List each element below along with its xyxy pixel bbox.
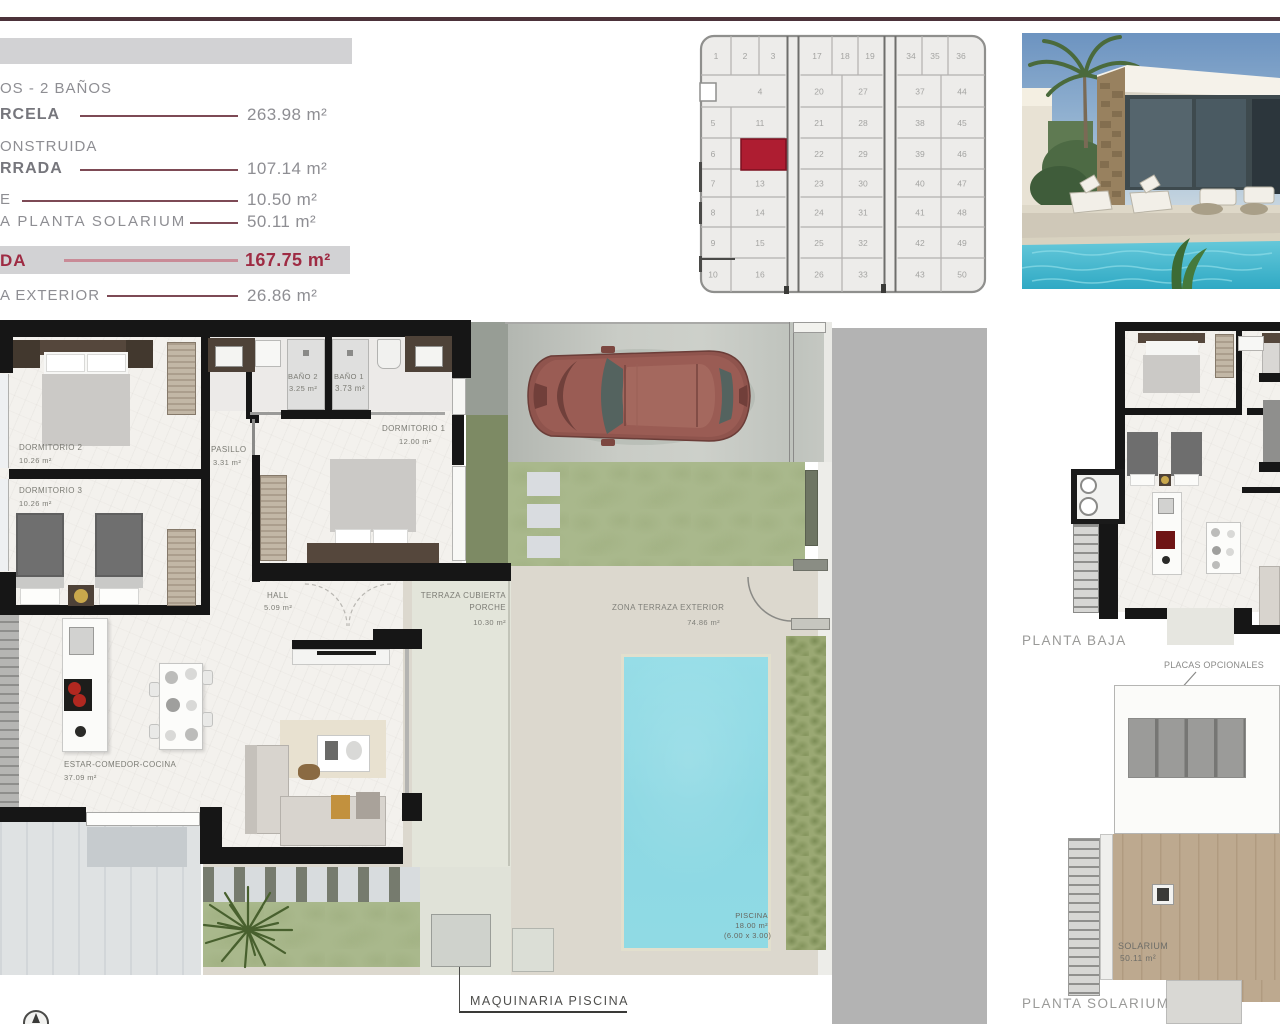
svg-text:20: 20 [814,87,824,97]
svg-text:15: 15 [755,238,765,248]
svg-text:39: 39 [915,149,925,159]
svg-text:9: 9 [711,238,716,248]
svg-text:14: 14 [755,208,765,218]
svg-text:45: 45 [957,118,967,128]
svg-text:28: 28 [858,118,868,128]
svg-text:41: 41 [915,208,925,218]
svg-text:30: 30 [858,179,868,189]
svg-text:27: 27 [858,87,868,97]
svg-text:46: 46 [957,149,967,159]
svg-text:49: 49 [957,238,967,248]
svg-text:16: 16 [755,270,765,280]
svg-text:47: 47 [957,179,967,189]
svg-text:25: 25 [814,238,824,248]
svg-text:33: 33 [858,270,868,280]
svg-text:19: 19 [865,51,875,61]
svg-text:48: 48 [957,208,967,218]
svg-text:7: 7 [711,179,716,189]
svg-text:37: 37 [915,87,925,97]
svg-text:10: 10 [708,270,718,280]
svg-text:24: 24 [814,208,824,218]
svg-text:42: 42 [915,238,925,248]
svg-text:43: 43 [915,270,925,280]
svg-text:35: 35 [930,51,940,61]
svg-text:36: 36 [956,51,966,61]
svg-text:40: 40 [915,179,925,189]
svg-text:38: 38 [915,118,925,128]
svg-text:13: 13 [755,179,765,189]
svg-text:8: 8 [711,208,716,218]
svg-text:11: 11 [756,118,765,128]
svg-text:32: 32 [858,238,868,248]
svg-text:6: 6 [711,149,716,159]
svg-text:29: 29 [858,149,868,159]
svg-text:50: 50 [957,270,967,280]
svg-text:1: 1 [714,51,719,61]
svg-text:3: 3 [771,51,776,61]
svg-text:5: 5 [711,118,716,128]
svg-text:21: 21 [814,118,824,128]
svg-text:4: 4 [758,87,763,97]
svg-text:22: 22 [814,149,824,159]
svg-text:18: 18 [840,51,850,61]
svg-text:17: 17 [812,51,822,61]
svg-text:23: 23 [814,179,824,189]
svg-text:44: 44 [957,87,967,97]
svg-text:31: 31 [858,208,868,218]
svg-text:2: 2 [743,51,748,61]
svg-text:34: 34 [906,51,916,61]
svg-text:26: 26 [814,270,824,280]
